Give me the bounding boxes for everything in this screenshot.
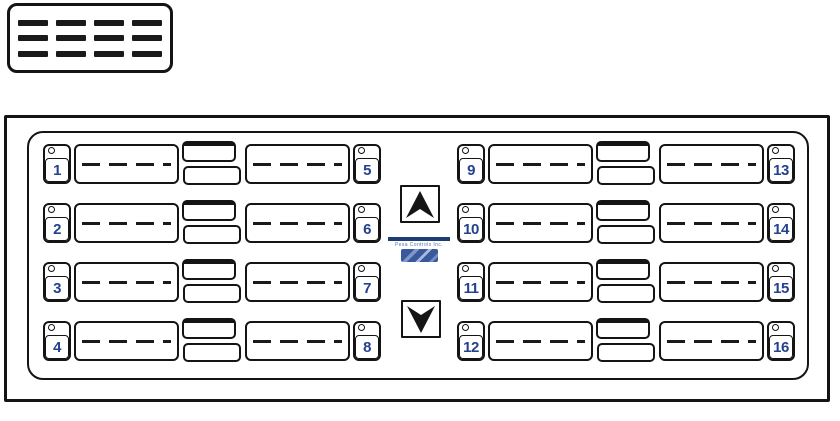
lcd-dash	[18, 51, 48, 57]
lcd-dash	[132, 35, 162, 41]
mid-button-top[interactable]	[596, 200, 650, 221]
led-indicator	[358, 324, 365, 331]
control-panel: 1 5 2	[4, 115, 830, 402]
button-14[interactable]: 14	[767, 203, 795, 243]
button-16[interactable]: 16	[767, 321, 795, 361]
mid-button-stack	[596, 262, 656, 302]
button-1[interactable]: 1	[43, 144, 71, 184]
mid-button-stack	[182, 321, 242, 361]
label-window	[659, 262, 764, 302]
led-indicator	[772, 206, 779, 213]
button-4[interactable]: 4	[43, 321, 71, 361]
mid-button-top[interactable]	[596, 259, 650, 280]
mid-button-top[interactable]	[182, 200, 236, 221]
mid-button-stack	[596, 144, 656, 184]
lcd-dash	[56, 20, 86, 26]
keypad-row: 3 7	[43, 262, 381, 302]
label-window	[74, 203, 179, 243]
led-indicator	[358, 265, 365, 272]
logo-emblem-icon	[401, 249, 438, 262]
button-8[interactable]: 8	[353, 321, 381, 361]
label-window	[659, 321, 764, 361]
lcd-display	[7, 3, 173, 73]
mid-button-top[interactable]	[182, 318, 236, 339]
mid-button-bottom[interactable]	[183, 343, 241, 362]
led-indicator	[462, 147, 469, 154]
label-dashes	[496, 340, 585, 343]
label-dashes	[496, 281, 585, 284]
led-indicator	[48, 265, 55, 272]
button-number: 8	[355, 335, 379, 359]
brand-logo: Pesa Controls Inc.	[387, 237, 451, 262]
up-arrow-icon	[403, 189, 437, 220]
lcd-dash	[94, 20, 124, 26]
label-dashes	[667, 281, 756, 284]
label-dashes	[82, 163, 171, 166]
label-dashes	[253, 163, 342, 166]
label-window	[245, 144, 350, 184]
label-dashes	[667, 163, 756, 166]
led-indicator	[772, 324, 779, 331]
logo-tagline: Pesa Controls Inc.	[387, 242, 451, 248]
button-15[interactable]: 15	[767, 262, 795, 302]
mid-button-stack	[182, 203, 242, 243]
lcd-dash-row	[18, 51, 162, 57]
label-window	[245, 262, 350, 302]
mid-button-bottom[interactable]	[183, 284, 241, 303]
mid-button-top[interactable]	[182, 141, 236, 162]
mid-button-bottom[interactable]	[597, 166, 655, 185]
keypad-left-half: 1 5 2	[43, 144, 381, 361]
button-number: 5	[355, 158, 379, 182]
lcd-dash	[132, 20, 162, 26]
mid-button-bottom[interactable]	[597, 284, 655, 303]
button-10[interactable]: 10	[457, 203, 485, 243]
lcd-dash-row	[18, 35, 162, 41]
keypad-row: 11 15	[457, 262, 795, 302]
button-12[interactable]: 12	[457, 321, 485, 361]
led-indicator	[48, 324, 55, 331]
led-indicator	[48, 147, 55, 154]
button-7[interactable]: 7	[353, 262, 381, 302]
mid-button-stack	[182, 144, 242, 184]
mid-button-top[interactable]	[182, 259, 236, 280]
down-arrow-icon	[404, 304, 438, 335]
lcd-dash	[56, 35, 86, 41]
label-window	[74, 262, 179, 302]
label-dashes	[667, 222, 756, 225]
button-number: 12	[459, 335, 483, 359]
lcd-dash	[132, 51, 162, 57]
lcd-dash	[56, 51, 86, 57]
keypad-row: 2 6	[43, 203, 381, 243]
label-window	[659, 144, 764, 184]
button-number: 7	[355, 276, 379, 300]
button-number: 2	[45, 217, 69, 241]
keypad-row: 10 14	[457, 203, 795, 243]
label-dashes	[253, 222, 342, 225]
led-indicator	[772, 265, 779, 272]
led-indicator	[772, 147, 779, 154]
button-9[interactable]: 9	[457, 144, 485, 184]
led-indicator	[358, 147, 365, 154]
button-3[interactable]: 3	[43, 262, 71, 302]
label-dashes	[253, 340, 342, 343]
label-dashes	[496, 163, 585, 166]
led-indicator	[462, 324, 469, 331]
button-number: 16	[769, 335, 793, 359]
label-dashes	[667, 340, 756, 343]
button-13[interactable]: 13	[767, 144, 795, 184]
keypad-right-half: 9 13 10	[457, 144, 795, 361]
led-indicator	[358, 206, 365, 213]
label-window	[488, 144, 593, 184]
keypad-row: 12 16	[457, 321, 795, 361]
mid-button-bottom[interactable]	[183, 225, 241, 244]
button-number: 3	[45, 276, 69, 300]
label-dashes	[82, 340, 171, 343]
lcd-dash-row	[18, 20, 162, 26]
mid-button-bottom[interactable]	[597, 225, 655, 244]
label-window	[245, 203, 350, 243]
button-11[interactable]: 11	[457, 262, 485, 302]
label-window	[488, 321, 593, 361]
mid-button-bottom[interactable]	[183, 166, 241, 185]
button-number: 13	[769, 158, 793, 182]
panel-faceplate: 1 5 2	[27, 131, 809, 380]
label-window	[74, 321, 179, 361]
label-window	[488, 262, 593, 302]
button-number: 10	[459, 217, 483, 241]
led-indicator	[462, 265, 469, 272]
mid-button-bottom[interactable]	[597, 343, 655, 362]
lcd-dash	[18, 20, 48, 26]
keypad-row: 9 13	[457, 144, 795, 184]
mid-button-stack	[596, 203, 656, 243]
lcd-dash	[94, 35, 124, 41]
scroll-up-button[interactable]	[400, 185, 440, 223]
led-indicator	[48, 206, 55, 213]
label-window	[488, 203, 593, 243]
button-number: 6	[355, 217, 379, 241]
lcd-dash	[18, 35, 48, 41]
mid-button-stack	[182, 262, 242, 302]
button-6[interactable]: 6	[353, 203, 381, 243]
label-window	[74, 144, 179, 184]
mid-button-top[interactable]	[596, 141, 650, 162]
button-2[interactable]: 2	[43, 203, 71, 243]
lcd-dash	[94, 51, 124, 57]
button-number: 9	[459, 158, 483, 182]
led-indicator	[462, 206, 469, 213]
button-number: 14	[769, 217, 793, 241]
keypad-row: 4 8	[43, 321, 381, 361]
label-window	[659, 203, 764, 243]
mid-button-top[interactable]	[596, 318, 650, 339]
button-number: 1	[45, 158, 69, 182]
label-window	[245, 321, 350, 361]
button-number: 11	[459, 276, 483, 300]
label-dashes	[82, 281, 171, 284]
keypad-row: 1 5	[43, 144, 381, 184]
label-dashes	[82, 222, 171, 225]
button-number: 4	[45, 335, 69, 359]
label-dashes	[496, 222, 585, 225]
button-number: 15	[769, 276, 793, 300]
button-5[interactable]: 5	[353, 144, 381, 184]
label-dashes	[253, 281, 342, 284]
scroll-down-button[interactable]	[401, 300, 441, 338]
mid-button-stack	[596, 321, 656, 361]
logo-bar	[388, 237, 450, 241]
